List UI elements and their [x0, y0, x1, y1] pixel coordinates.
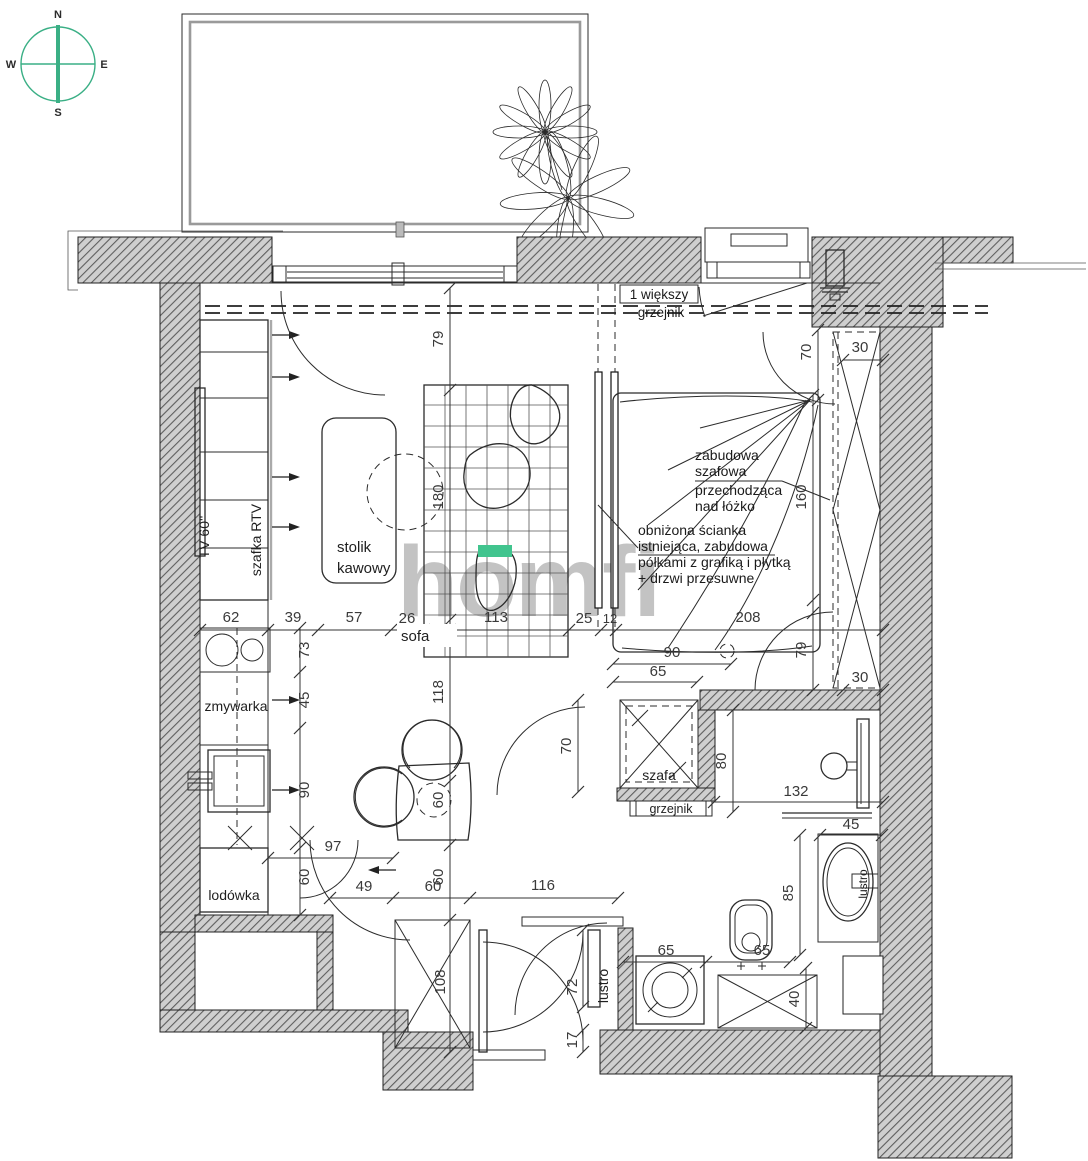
lowered-wall-note-2: istniejąca, zabudowa — [638, 538, 768, 554]
lowered-wall-note-1: obniżona ścianka — [638, 522, 746, 538]
coffee-table-label-1: stolik — [337, 539, 372, 556]
coffee-table-label-2: kawowy — [337, 560, 391, 577]
floor-plan-page: homfi — [0, 0, 1088, 1161]
dim-65-hall: 65 — [650, 663, 667, 680]
rtv-cabinet-label: szafka RTV — [248, 503, 264, 576]
dim-17: 17 — [564, 1032, 581, 1049]
lowered-wall-note-3: półkami z grafiką i płytką — [638, 554, 791, 570]
floor-plan-drawing: homfi — [0, 0, 1088, 1161]
dim-60-k: 60 — [296, 869, 313, 886]
sofa-label: sofa — [401, 628, 430, 645]
dim-30-top: 30 — [852, 339, 869, 356]
dim-70-bed: 70 — [798, 344, 815, 361]
compass-s: S — [54, 107, 61, 119]
compass-w: W — [6, 59, 17, 71]
dim-70-hall: 70 — [558, 738, 575, 755]
dim-57: 57 — [346, 609, 363, 626]
dishwasher-label: zmywarka — [204, 698, 267, 714]
wardrobe-note-2: szafowa — [695, 463, 747, 479]
compass-e: E — [100, 59, 107, 71]
lowered-wall-note-4: + drzwi przesuwne — [638, 570, 755, 586]
dim-73: 73 — [296, 642, 313, 659]
dim-30-bottom: 30 — [852, 669, 869, 686]
dim-39: 39 — [285, 609, 302, 626]
radiator-label: grzejnik — [649, 802, 693, 816]
dim-45-bath: 45 — [843, 816, 860, 833]
dim-62: 62 — [223, 609, 240, 626]
wardrobe-note-4: nad łóżko — [695, 498, 755, 514]
dim-40: 40 — [786, 991, 803, 1008]
dim-79-bed: 79 — [793, 642, 810, 659]
hall-mirror-label: lustro — [595, 969, 611, 1003]
dim-25: 25 — [576, 610, 593, 627]
fridge-label: lodówka — [208, 887, 260, 903]
homfi-watermark: homfi — [397, 526, 659, 638]
dim-65-wc-a: 65 — [658, 942, 675, 959]
dim-97: 97 — [325, 838, 342, 855]
dim-90-hall: 90 — [664, 644, 681, 661]
dim-12: 12 — [603, 611, 617, 626]
radiator-note-2: grzejnik — [638, 305, 685, 320]
wardrobe-label: szafa — [642, 767, 676, 783]
tv-label: TV 60'' — [196, 516, 212, 559]
dim-132: 132 — [783, 783, 808, 800]
compass-n: N — [54, 9, 62, 21]
dim-116: 116 — [531, 877, 555, 894]
green-highlight-bar — [478, 545, 512, 557]
dim-60-c: 60 — [425, 878, 442, 895]
dim-85: 85 — [780, 885, 797, 902]
dim-72: 72 — [564, 979, 581, 996]
radiator-note-1: 1 większy — [630, 287, 689, 302]
dim-79-top: 79 — [430, 331, 447, 348]
dim-60-a: 60 — [430, 792, 447, 809]
dim-113: 113 — [484, 609, 508, 626]
dim-80: 80 — [713, 753, 730, 770]
dim-108: 108 — [432, 969, 449, 994]
dim-90: 90 — [296, 782, 313, 799]
dim-65-wc-b: 65 — [754, 942, 771, 959]
bathroom-mirror-label: lustro — [856, 869, 870, 899]
dim-45: 45 — [296, 692, 313, 709]
dim-208: 208 — [735, 609, 760, 626]
wardrobe-note-1: zabudowa — [695, 447, 759, 463]
wardrobe-note-3: przechodząca — [695, 482, 782, 498]
dim-180: 180 — [430, 484, 447, 509]
wall-recess — [843, 956, 883, 1014]
dim-118: 118 — [430, 680, 447, 704]
dim-49: 49 — [356, 878, 373, 895]
